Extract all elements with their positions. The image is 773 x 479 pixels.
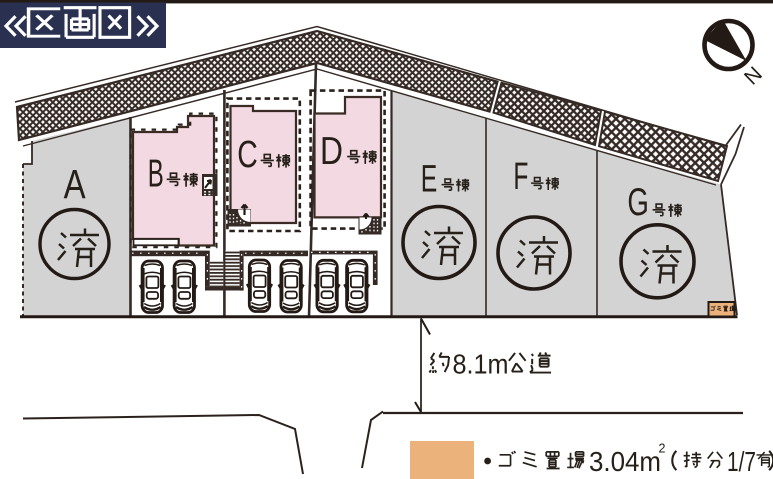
- svg-text:B: B: [148, 153, 164, 196]
- svg-text:A: A: [64, 161, 87, 207]
- svg-text:3.04m: 3.04m: [589, 446, 661, 477]
- svg-text:F: F: [513, 156, 528, 198]
- svg-text:2: 2: [659, 442, 666, 456]
- svg-text:G: G: [627, 181, 649, 224]
- svg-text:D: D: [320, 130, 343, 173]
- svg-text:1/7: 1/7: [727, 446, 756, 477]
- svg-text:E: E: [421, 159, 438, 201]
- svg-text:8.1m: 8.1m: [453, 349, 509, 380]
- svg-text:C: C: [237, 134, 258, 176]
